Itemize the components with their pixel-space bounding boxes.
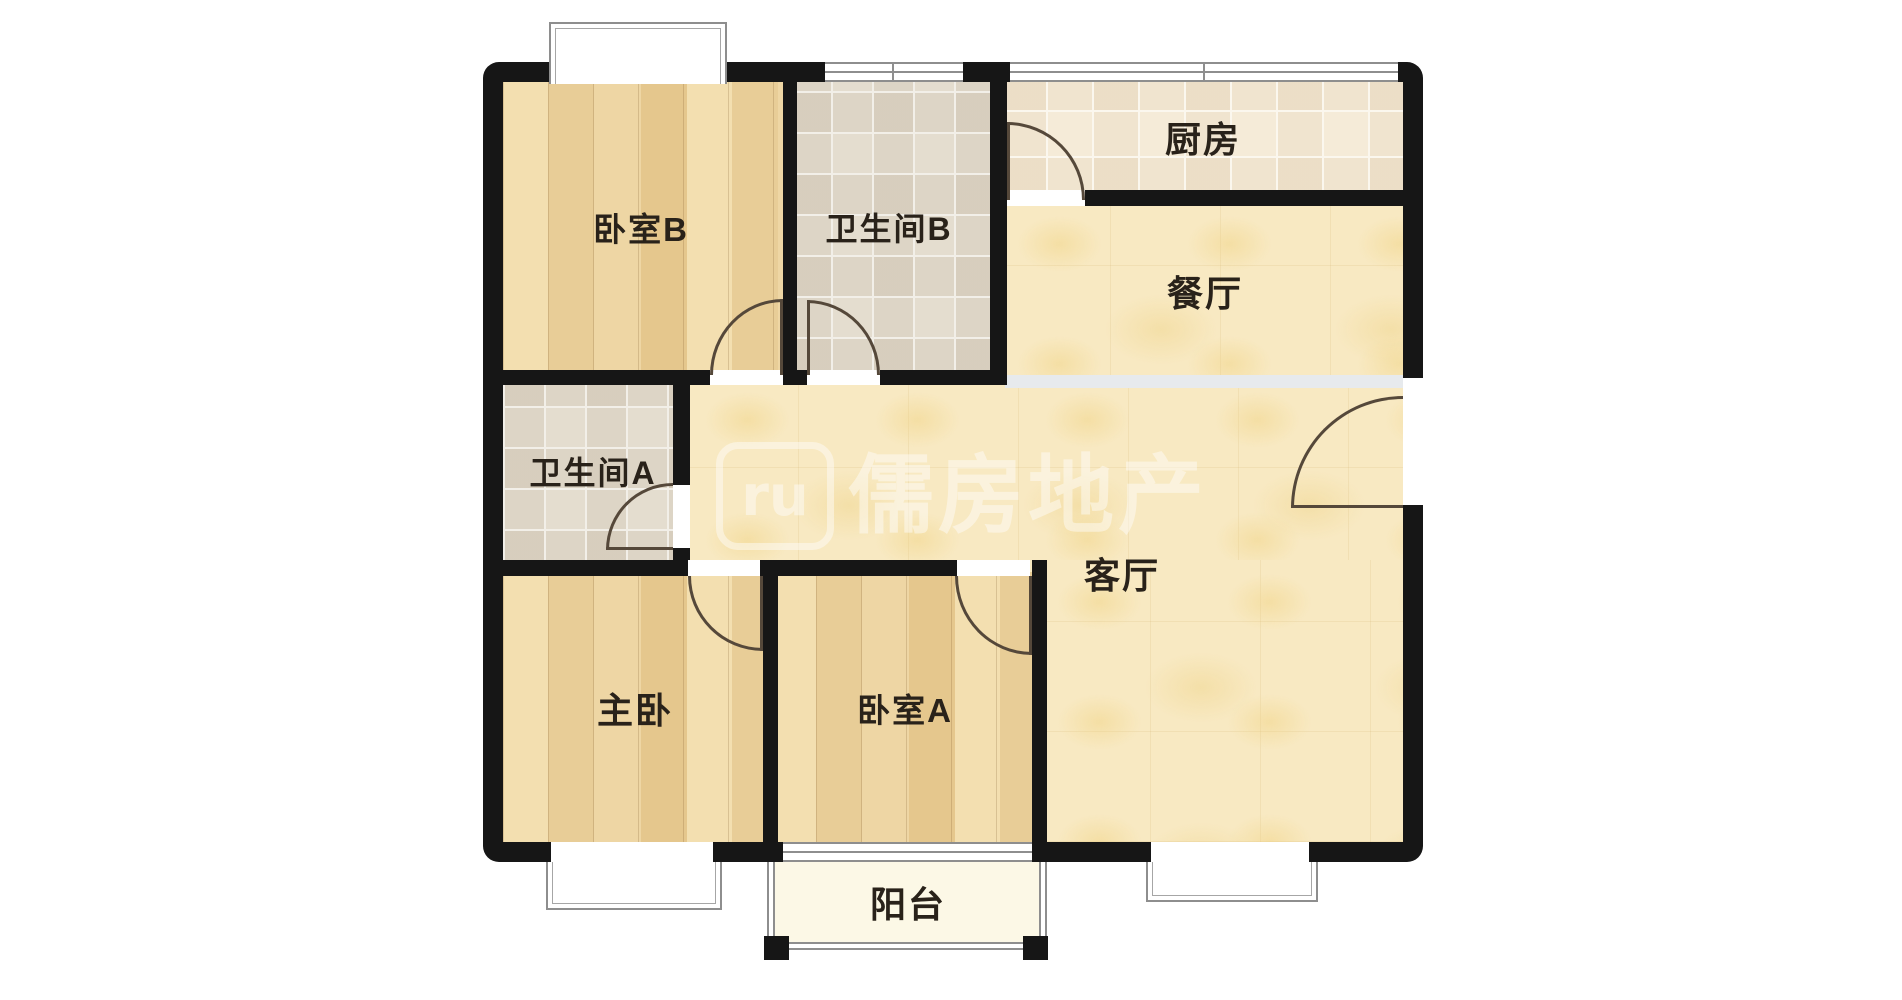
living-room-window-inner-line bbox=[1152, 862, 1312, 896]
wall-hall-north-stub bbox=[783, 370, 807, 385]
floor-plan: 卧室B 卫生间B 厨房 餐厅 卫生间A 客厅 主卧 卧室A 阳台 ru 儒房地产 bbox=[0, 0, 1902, 1000]
balcony-rail-bottom bbox=[767, 942, 1047, 950]
kitchen-window-mullion bbox=[1203, 62, 1205, 82]
room-label-bedroom-a: 卧室A bbox=[857, 684, 953, 732]
room-label-bathroom-b: 卫生间B bbox=[825, 204, 952, 250]
room-label-master-bedroom: 主卧 bbox=[597, 682, 673, 734]
living-room-window bbox=[1146, 862, 1318, 902]
wall-master-bedroom-a bbox=[763, 576, 778, 842]
balcony-rail-left bbox=[767, 862, 775, 944]
opening-bedroom-a-door bbox=[957, 560, 1030, 576]
balcony-post-left bbox=[764, 936, 789, 960]
wall-hall-south-left bbox=[503, 560, 688, 576]
room-label-bathroom-a: 卫生间A bbox=[529, 448, 656, 494]
opening-living-window bbox=[1151, 842, 1309, 862]
wall-bathroom-a-east-upper bbox=[673, 378, 690, 485]
master-bedroom-window-inner-line bbox=[552, 862, 716, 904]
wall-hall-north-right bbox=[880, 370, 1005, 385]
wall-bedroom-b-bathroom-b bbox=[783, 82, 797, 378]
room-label-kitchen: 厨房 bbox=[1165, 111, 1241, 163]
room-label-bedroom-b: 卧室B bbox=[593, 203, 689, 251]
brand-watermark-text: 儒房地产 bbox=[848, 453, 1208, 539]
wall-kitchen-dining bbox=[1085, 190, 1403, 206]
wall-bedroom-a-east bbox=[1032, 560, 1047, 842]
opening-master-window bbox=[551, 842, 713, 862]
bathroom-b-window-mullion bbox=[892, 62, 894, 82]
balcony-post-right bbox=[1023, 936, 1048, 960]
balcony-sliding-window bbox=[783, 842, 1032, 862]
room-label-dining-room: 餐厅 bbox=[1167, 265, 1243, 317]
brand-watermark: ru 儒房地产 bbox=[716, 442, 1208, 550]
balcony-rail-right bbox=[1039, 862, 1047, 944]
opening-bathroom-a-door bbox=[673, 485, 690, 548]
room-label-balcony: 阳台 bbox=[870, 876, 946, 928]
opening-entry-door bbox=[1403, 378, 1423, 505]
opening-master-door bbox=[688, 560, 760, 576]
brand-logo-icon: ru bbox=[716, 442, 834, 550]
wall-bathroom-b-kitchen bbox=[990, 82, 1007, 385]
master-bedroom-window bbox=[546, 862, 722, 910]
bedroom-b-bay-window-inner-line bbox=[555, 28, 721, 84]
bedroom-b-bay-window bbox=[549, 22, 727, 84]
bathroom-b-window bbox=[825, 62, 963, 82]
room-label-living-room: 客厅 bbox=[1084, 547, 1160, 599]
wall-bedroom-a-north bbox=[760, 560, 957, 576]
